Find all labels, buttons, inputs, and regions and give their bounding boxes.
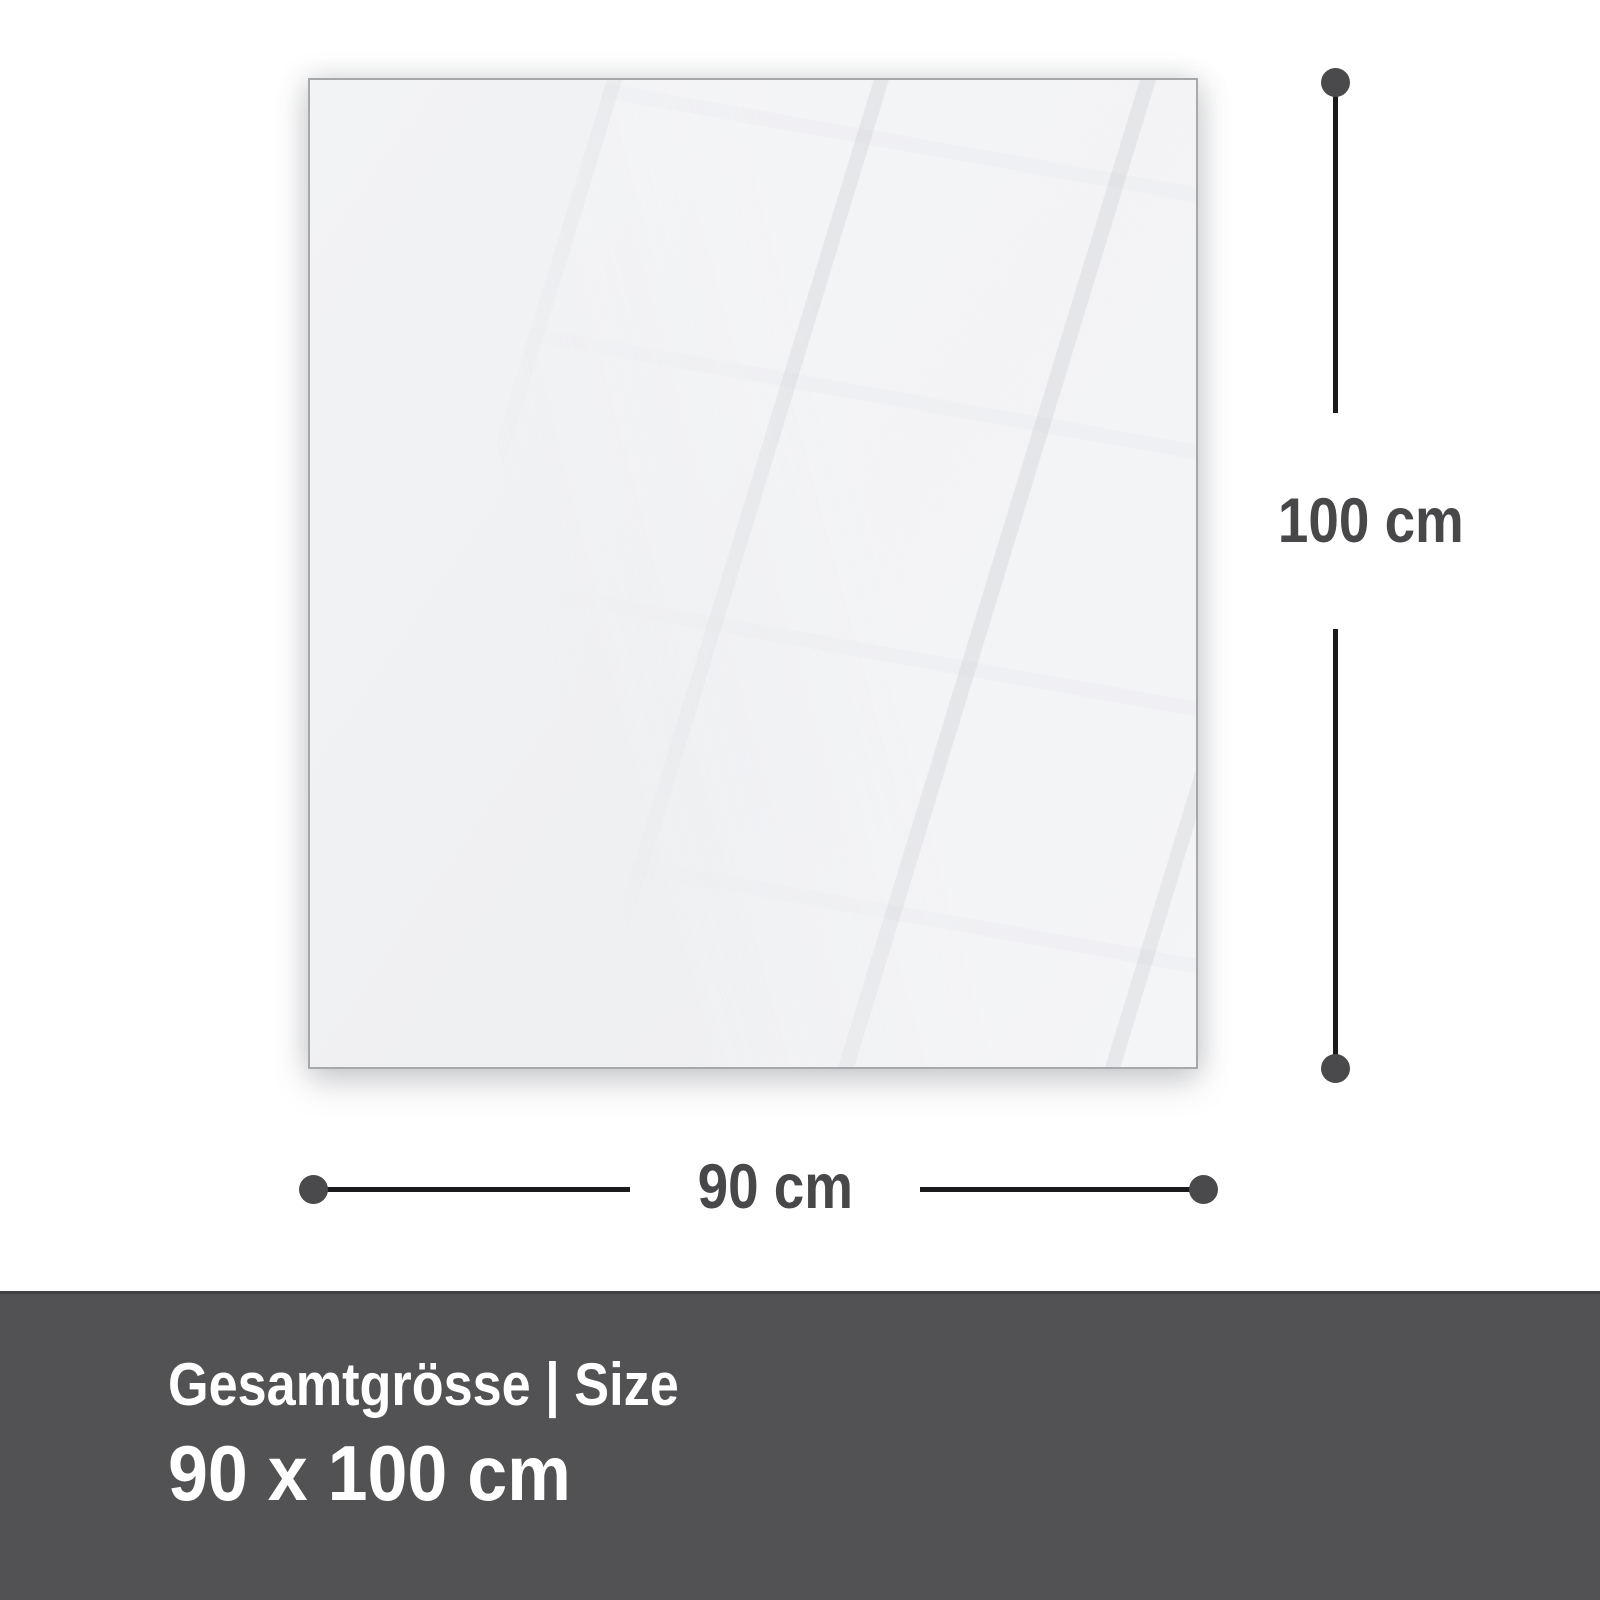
glass-panel: [308, 78, 1198, 1069]
height-dimension-top-dot: [1321, 68, 1350, 97]
width-dimension-value: 90 cm: [697, 1156, 852, 1219]
width-dimension-left-dot: [299, 1175, 328, 1204]
height-dimension-label: 100 cm: [1268, 413, 1474, 629]
product-dimension-diagram: 100 cm 90 cm Gesamtgrösse | Size 90 x 10…: [0, 0, 1600, 1600]
size-section-title: Gesamtgrösse | Size: [168, 1355, 679, 1415]
height-dimension-value: 100 cm: [1278, 490, 1464, 553]
glass-reflection: [310, 80, 1196, 1067]
width-dimension-right-dot: [1189, 1175, 1218, 1204]
height-dimension-bottom-dot: [1321, 1054, 1350, 1083]
width-dimension-label: 90 cm: [630, 1131, 920, 1243]
size-value: 90 x 100 cm: [168, 1434, 571, 1512]
